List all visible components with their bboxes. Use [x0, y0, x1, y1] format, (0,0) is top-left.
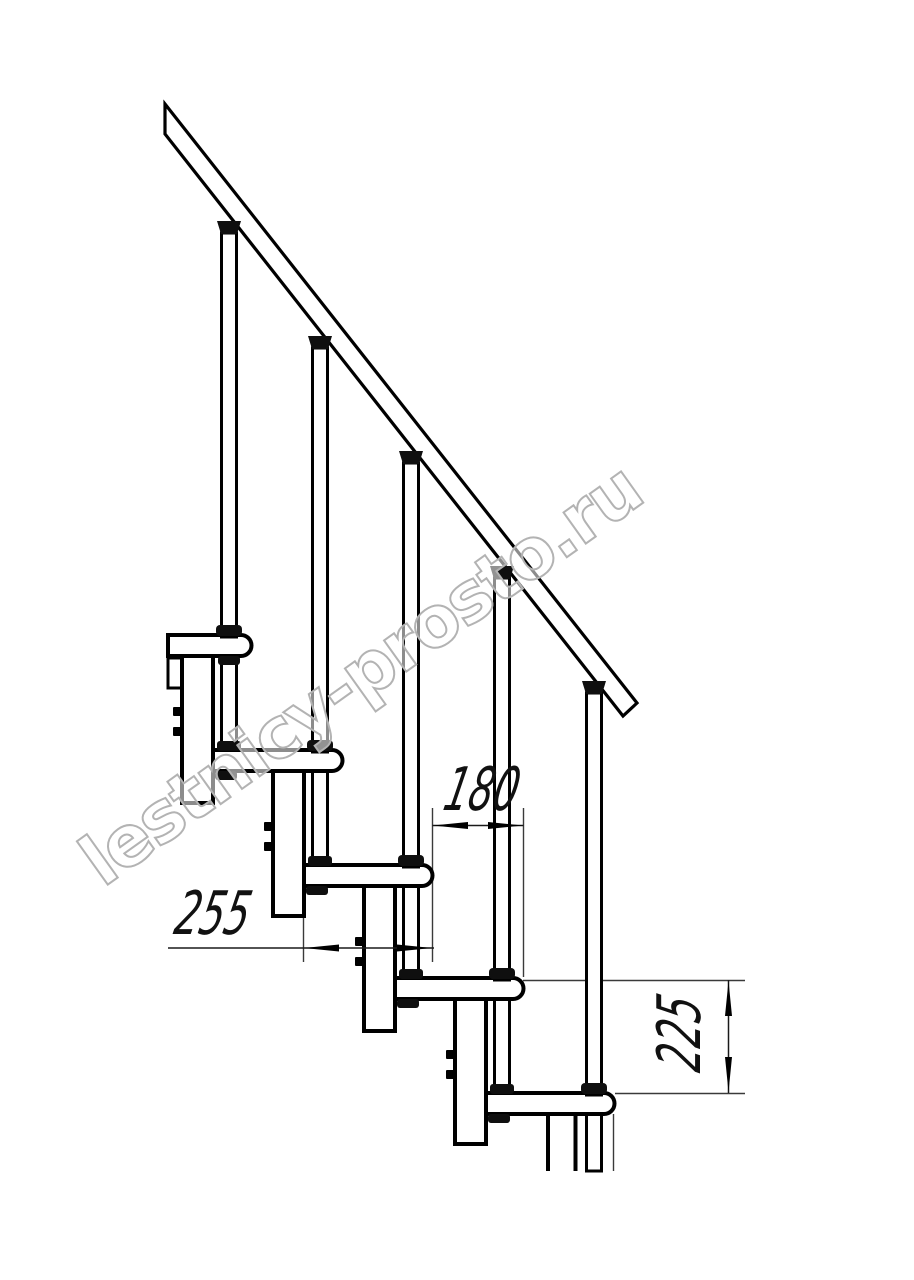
baluster-5-upper: [587, 693, 602, 1095]
under-tread-nut-icon: [488, 1114, 510, 1123]
baluster-mount-icon: [581, 1083, 607, 1094]
dimension-step-rise: 225: [646, 980, 732, 1093]
bolt-icon: [355, 957, 364, 966]
dimension-label-255: 255: [169, 880, 257, 949]
upper-mount-flange: [168, 658, 182, 688]
baluster-collar-icon: [308, 856, 332, 866]
bolt-icon: [264, 842, 273, 851]
bolt-icon: [264, 822, 273, 831]
baluster-mount-icon: [489, 968, 515, 979]
baluster-collar-icon: [399, 969, 423, 979]
arrow-up-icon: [725, 981, 732, 1016]
dimension-label-225: 225: [646, 989, 715, 1077]
bolt-icon: [446, 1070, 455, 1079]
bolt-icon: [173, 707, 182, 716]
baluster-3-lower: [404, 886, 419, 978]
staircase-drawing-canvas: 180 255 225 lestnicy-prosto.ru: [0, 0, 914, 1280]
baluster-collar-icon: [490, 1084, 514, 1094]
baluster-2-lower: [313, 771, 328, 865]
baluster-mount-icon: [216, 625, 242, 636]
under-tread-nut-icon: [397, 999, 419, 1008]
under-tread-nut-icon: [218, 656, 240, 665]
baluster-1-upper: [222, 233, 237, 637]
arrow-down-icon: [725, 1057, 732, 1092]
tread-1: [168, 635, 252, 656]
dimension-label-180: 180: [438, 756, 526, 825]
bolt-icon: [173, 727, 182, 736]
rail-connector-icon: [582, 681, 606, 694]
support-module-2: [273, 771, 304, 916]
staircase-technical-drawing: 180 255 225 lestnicy-prosto.ru: [0, 0, 914, 1280]
support-module-3: [364, 886, 395, 1031]
bolt-icon: [355, 937, 364, 946]
watermark-text: lestnicy-prosto.ru: [65, 447, 656, 901]
under-tread-nut-icon: [306, 886, 328, 895]
bolt-icon: [446, 1050, 455, 1059]
baluster-mount-icon: [398, 855, 424, 866]
support-module-4: [455, 999, 486, 1144]
rail-connector-icon: [399, 451, 423, 464]
rail-connector-icon: [308, 336, 332, 349]
dimension-step-run: 180: [433, 756, 527, 829]
arrow-left-icon: [304, 945, 339, 952]
baluster-5-lower: [587, 1114, 602, 1171]
rail-connector-icon: [217, 221, 241, 234]
baluster-4-lower: [495, 999, 510, 1093]
